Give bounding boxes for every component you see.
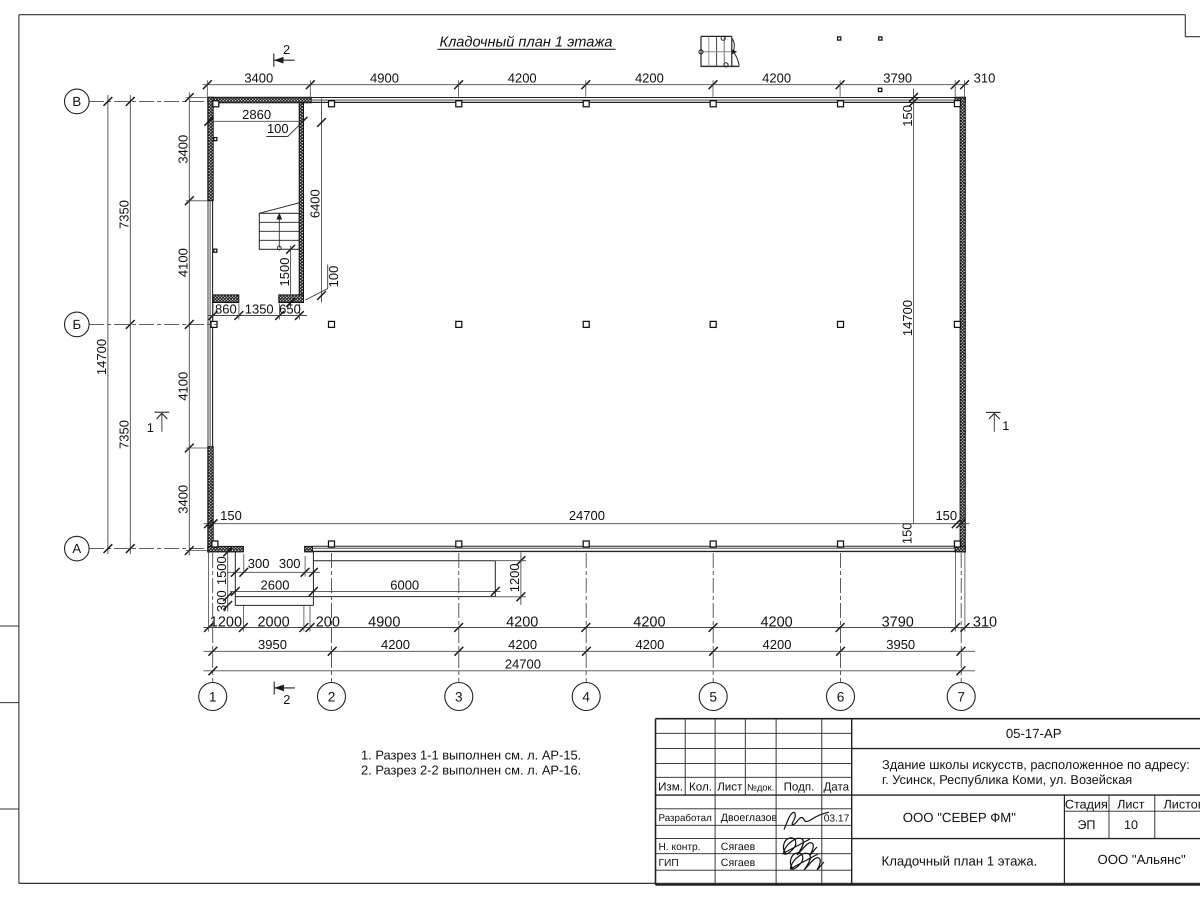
svg-text:24700: 24700 — [569, 508, 605, 523]
svg-text:2: 2 — [283, 692, 290, 707]
svg-text:1500: 1500 — [214, 556, 229, 585]
svg-text:Лист: Лист — [717, 781, 743, 794]
svg-text:7: 7 — [957, 689, 965, 704]
svg-text:10: 10 — [1124, 818, 1138, 832]
svg-text:4200: 4200 — [760, 614, 792, 630]
svg-text:Сягаев: Сягаев — [721, 857, 756, 869]
svg-text:В: В — [72, 94, 81, 109]
svg-text:Б: Б — [72, 317, 81, 332]
svg-text:Здание школы искусств, располо: Здание школы искусств, расположенное по … — [882, 757, 1190, 772]
svg-text:3950: 3950 — [886, 637, 915, 652]
svg-text:14700: 14700 — [94, 339, 109, 375]
svg-text:Лист: Лист — [1117, 798, 1145, 812]
svg-text:3790: 3790 — [883, 71, 912, 86]
svg-text:Изм.: Изм. — [658, 781, 683, 794]
svg-text:4900: 4900 — [370, 71, 399, 86]
svg-text:1350: 1350 — [245, 301, 274, 316]
svg-text:3950: 3950 — [258, 637, 287, 652]
svg-text:300: 300 — [248, 556, 270, 571]
svg-text:4: 4 — [582, 689, 590, 704]
svg-text:№док.: №док. — [747, 783, 774, 793]
svg-text:03.17: 03.17 — [824, 813, 850, 824]
svg-text:1: 1 — [209, 689, 217, 704]
svg-text:ЭП: ЭП — [1077, 818, 1095, 832]
svg-text:4100: 4100 — [176, 248, 191, 277]
svg-text:Стадия: Стадия — [1065, 798, 1108, 812]
svg-text:Подп.: Подп. — [784, 781, 815, 794]
svg-text:6: 6 — [837, 689, 845, 704]
svg-text:310: 310 — [974, 71, 996, 86]
svg-text:4900: 4900 — [368, 614, 400, 630]
svg-text:ООО "Альянс": ООО "Альянс" — [1098, 852, 1186, 867]
svg-text:Листов: Листов — [1164, 798, 1200, 812]
svg-text:3400: 3400 — [176, 135, 191, 164]
svg-text:6000: 6000 — [390, 577, 419, 592]
svg-text:ГИП: ГИП — [659, 858, 679, 869]
svg-text:А: А — [72, 541, 81, 556]
svg-text:4200: 4200 — [763, 637, 792, 652]
svg-text:24700: 24700 — [505, 657, 541, 672]
svg-text:4200: 4200 — [635, 637, 664, 652]
svg-text:1. Разрез 1-1 выполнен см. л.: 1. Разрез 1-1 выполнен см. л. АР-15. — [361, 747, 581, 762]
svg-text:ООО "СЕВЕР ФМ": ООО "СЕВЕР ФМ" — [903, 810, 1017, 825]
svg-text:100: 100 — [267, 121, 289, 136]
svg-text:Н. контр.: Н. контр. — [659, 842, 701, 853]
svg-text:1200: 1200 — [210, 614, 242, 630]
svg-text:4200: 4200 — [762, 71, 791, 86]
svg-text:1500: 1500 — [277, 258, 292, 287]
svg-text:4200: 4200 — [635, 71, 664, 86]
svg-text:200: 200 — [316, 614, 340, 630]
svg-text:4200: 4200 — [508, 71, 537, 86]
svg-text:150: 150 — [935, 508, 957, 523]
svg-text:300: 300 — [279, 556, 301, 571]
svg-text:14700: 14700 — [900, 300, 915, 336]
svg-text:5: 5 — [709, 689, 717, 704]
svg-text:150: 150 — [899, 522, 914, 544]
svg-text:Кол.: Кол. — [689, 781, 712, 794]
svg-text:1: 1 — [147, 420, 154, 435]
svg-text:7350: 7350 — [117, 200, 132, 229]
svg-text:3400: 3400 — [244, 71, 273, 86]
svg-text:Дата: Дата — [823, 781, 849, 794]
svg-text:Сягаев: Сягаев — [721, 841, 756, 853]
svg-text:05-17-АР: 05-17-АР — [1006, 726, 1062, 741]
svg-text:650: 650 — [279, 301, 301, 316]
svg-text:3400: 3400 — [176, 485, 191, 514]
svg-text:2: 2 — [283, 42, 290, 57]
svg-text:310: 310 — [973, 614, 997, 630]
svg-text:г. Усинск, Республика Коми, ул: г. Усинск, Республика Коми, ул. Возейска… — [882, 772, 1132, 787]
svg-text:150: 150 — [220, 508, 242, 523]
svg-text:4200: 4200 — [506, 614, 538, 630]
svg-text:300: 300 — [214, 590, 229, 612]
svg-text:3: 3 — [455, 689, 463, 704]
svg-text:6400: 6400 — [308, 189, 323, 218]
svg-text:100: 100 — [326, 266, 341, 288]
svg-text:Двоеглазов: Двоеглазов — [721, 812, 778, 824]
svg-text:1: 1 — [1002, 418, 1009, 433]
svg-text:Разработал: Разработал — [659, 813, 713, 824]
svg-text:2. Разрез 2-2 выполнен см. л.: 2. Разрез 2-2 выполнен см. л. АР-16. — [361, 763, 581, 778]
svg-text:150: 150 — [900, 105, 915, 127]
svg-text:4200: 4200 — [633, 614, 665, 630]
svg-text:Кладочный план 1 этажа: Кладочный план 1 этажа — [439, 35, 612, 51]
svg-text:860: 860 — [215, 301, 237, 316]
svg-text:Кладочный план 1 этажа.: Кладочный план 1 этажа. — [882, 854, 1038, 869]
svg-text:3790: 3790 — [882, 614, 914, 630]
svg-text:4100: 4100 — [176, 372, 191, 401]
svg-text:2000: 2000 — [257, 614, 289, 630]
svg-text:7350: 7350 — [117, 420, 132, 449]
svg-text:4200: 4200 — [508, 637, 537, 652]
svg-text:2600: 2600 — [261, 577, 290, 592]
svg-text:2: 2 — [328, 689, 336, 704]
svg-text:1200: 1200 — [507, 563, 522, 592]
svg-text:4200: 4200 — [381, 637, 410, 652]
